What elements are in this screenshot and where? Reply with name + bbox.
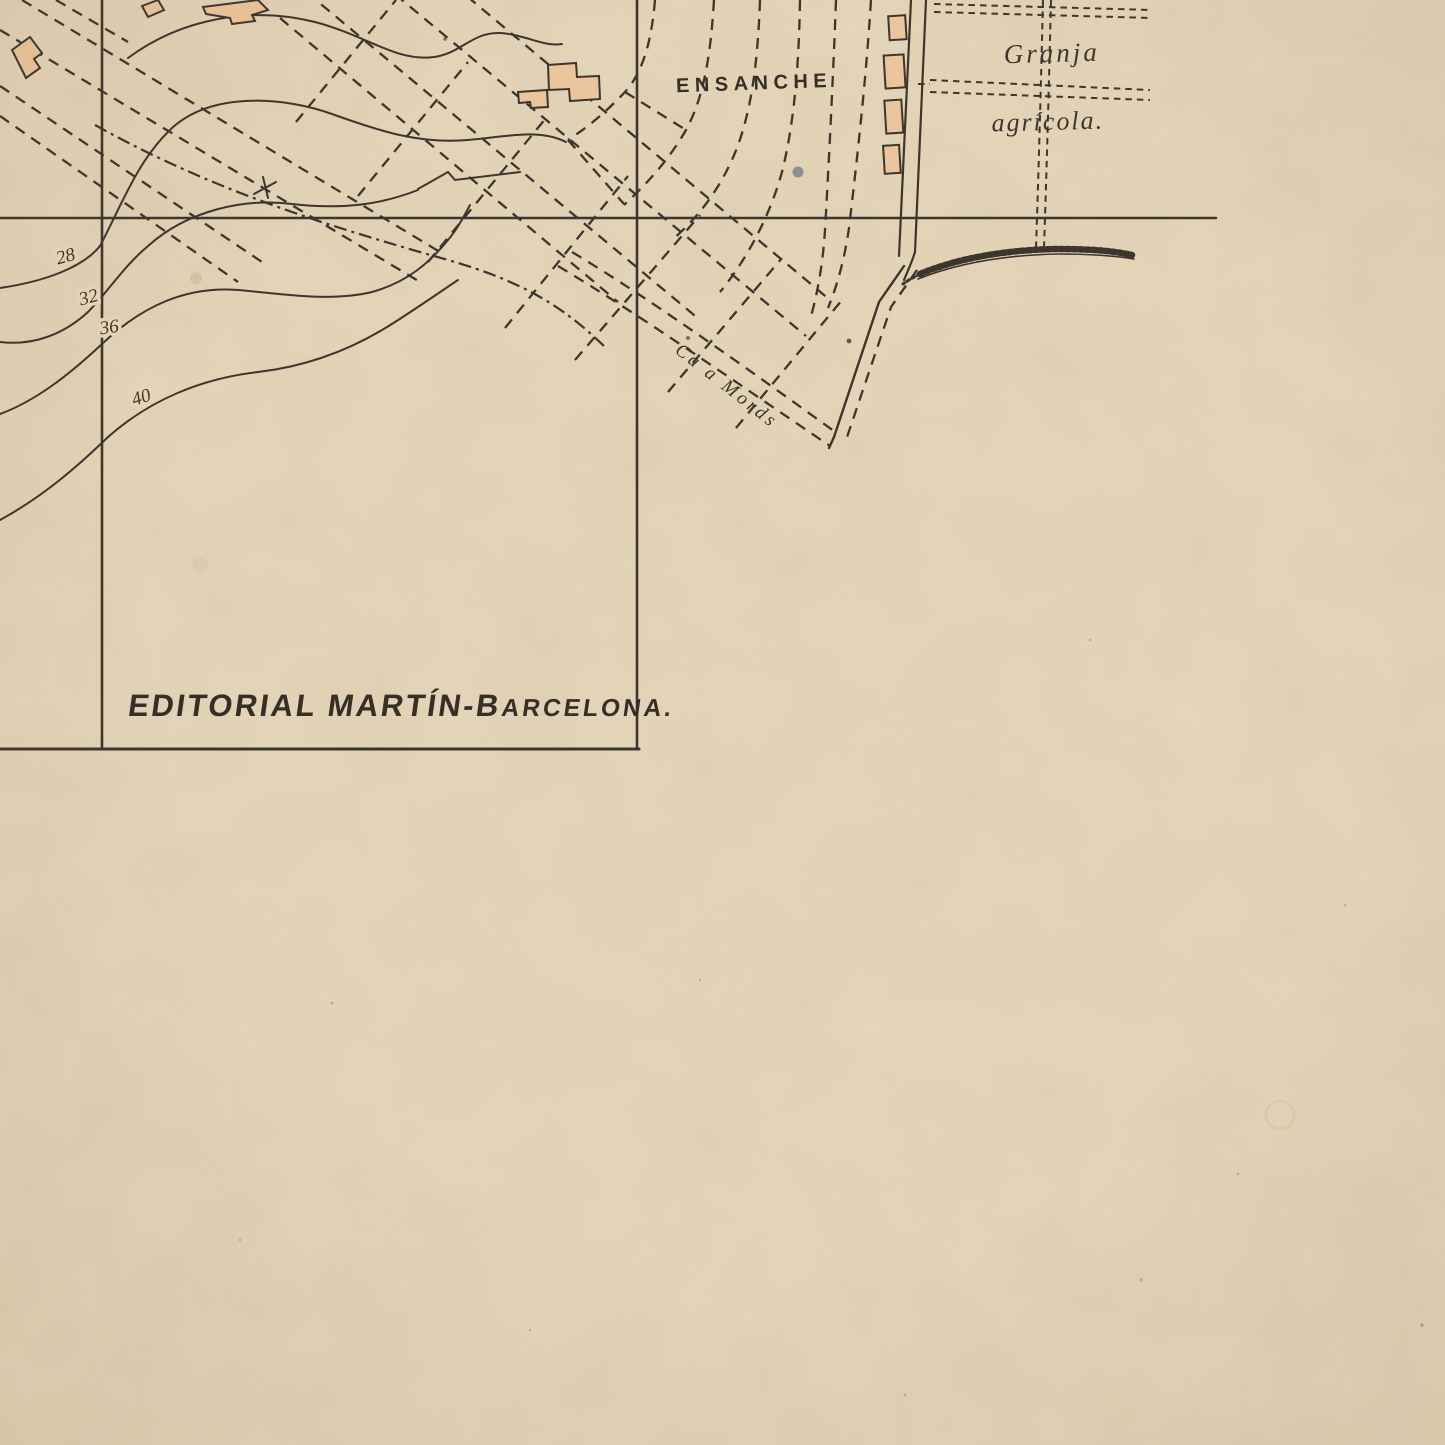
- paper-grain-texture: [0, 0, 1445, 1445]
- map-drawing: ENSANCHE Granja agrícola. Ca a Mords 28 …: [0, 0, 1445, 1445]
- antique-map-sheet: ENSANCHE Granja agrícola. Ca a Mords 28 …: [0, 0, 1445, 1445]
